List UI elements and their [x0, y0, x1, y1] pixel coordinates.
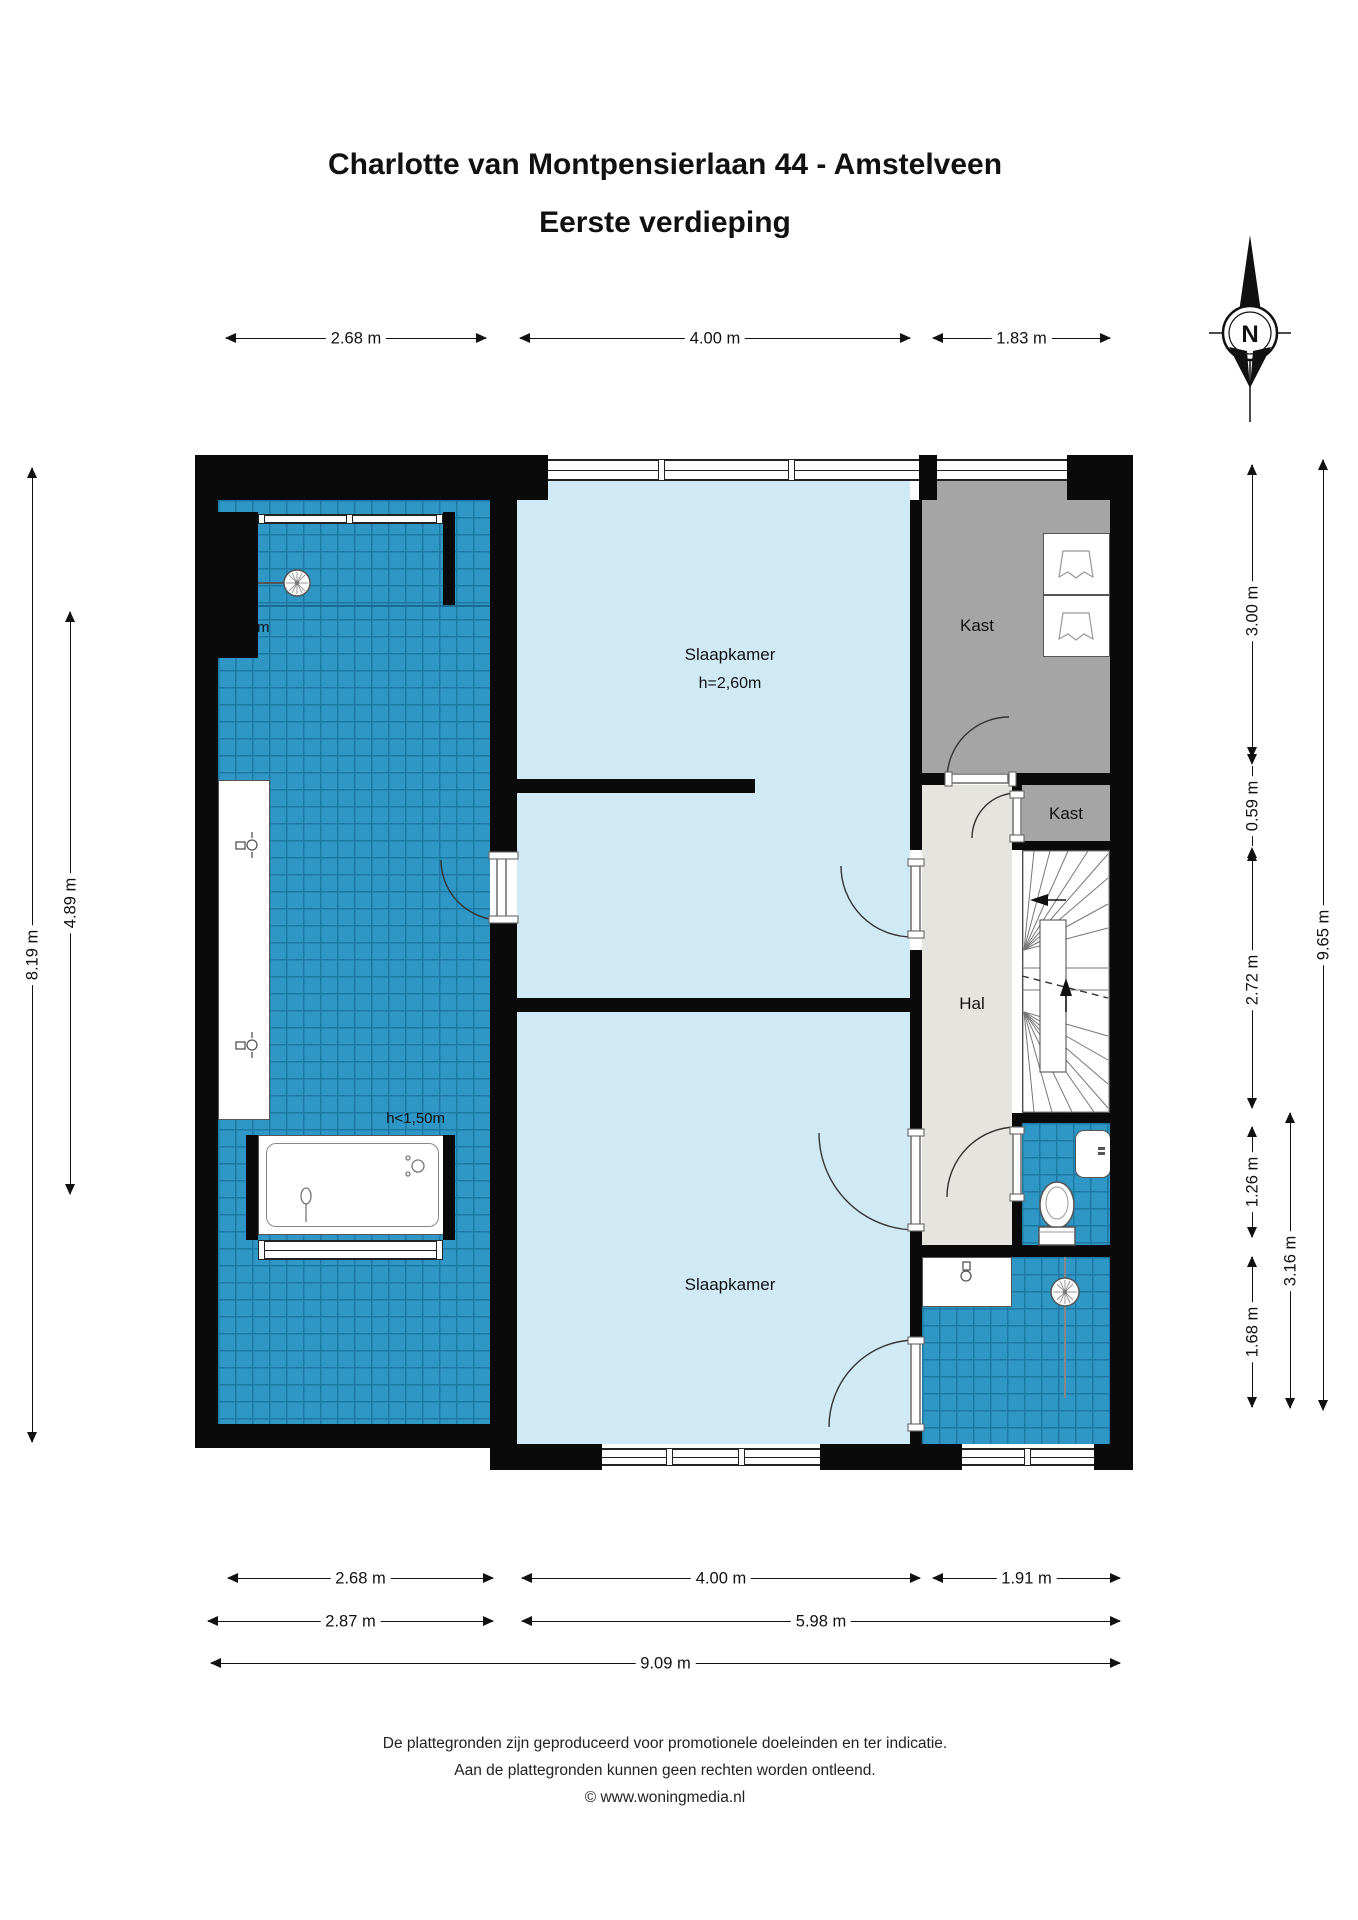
door-opening-hall-bedroom-bottom: [910, 1133, 922, 1230]
arrow-icon: [227, 1573, 238, 1583]
arrow-icon: [1318, 1400, 1328, 1411]
arrow-icon: [1285, 1112, 1295, 1123]
floorplan-page: Charlotte van Montpensierlaan 44 - Amste…: [0, 0, 1358, 1920]
toilet-handbasin: [1075, 1130, 1111, 1178]
closet-small-label: Kast: [1022, 804, 1110, 824]
dim-bottom1-left: 2.68 m: [228, 1578, 493, 1579]
door-opening-closet-large: [947, 773, 1015, 785]
wall-shower-stub-right: [443, 512, 455, 605]
wall-right-outer: [1110, 455, 1133, 1470]
dim-right-closet-small: 0.59 m: [1252, 766, 1253, 846]
wall-mid-left-lower: [490, 922, 517, 1470]
arrow-icon: [900, 333, 911, 343]
arrow-icon: [476, 333, 487, 343]
dim-bottom2-left: 2.87 m: [208, 1621, 493, 1622]
dim-right-closet: 3.00 m: [1252, 465, 1253, 757]
arrow-icon: [1247, 1397, 1257, 1408]
page-title-address: Charlotte van Montpensierlaan 44 - Amste…: [0, 148, 1330, 182]
bedroom-bottom-floor: [517, 1012, 910, 1444]
arrow-icon: [27, 467, 37, 478]
wall-bedroom-stub: [517, 779, 755, 793]
window-closet-large: [937, 459, 1067, 481]
arrow-icon: [483, 1573, 494, 1583]
arrow-icon: [1247, 1227, 1257, 1238]
dim-bottom1-right: 1.91 m: [933, 1578, 1120, 1579]
bathroom-washbasin: [922, 1257, 1012, 1307]
window-bedroom-top: [548, 459, 919, 481]
door-opening-hall-bedroom-top: [910, 863, 922, 937]
arrow-icon: [1110, 1616, 1121, 1626]
arrow-icon: [65, 1184, 75, 1195]
dim-right-wet-zone: 3.16 m: [1290, 1113, 1291, 1408]
wall-bathroom-top: [910, 1245, 1110, 1257]
wall-toilet-left-b: [1012, 1200, 1022, 1245]
window-bedroom-bottom: [602, 1448, 820, 1466]
footer-disclaimer-line2: Aan de plattegronden kunnen geen rechten…: [0, 1762, 1330, 1780]
bedroom-middle-patch: [755, 779, 910, 793]
closet-large-patch: [937, 481, 1067, 500]
arrow-icon: [519, 333, 530, 343]
hall-floor: [922, 785, 1012, 1245]
arrow-icon: [207, 1616, 218, 1626]
dim-bottom3-total: 9.09 m: [211, 1663, 1120, 1664]
bedroom-top-label: Slaapkamer: [540, 645, 920, 665]
wall-bath-stub-left: [246, 1135, 258, 1240]
wall-closet-bottom-left: [910, 773, 947, 785]
arrow-icon: [1110, 1658, 1121, 1668]
arrow-icon: [1247, 464, 1257, 475]
arrow-icon: [27, 1432, 37, 1443]
compass-north-icon: N: [1209, 235, 1291, 422]
arrow-icon: [65, 611, 75, 622]
staircase-floor: [1022, 850, 1110, 1113]
attic-height-note-bottom: h<1,50m: [340, 1110, 445, 1127]
wall-bottom-pier-left: [490, 1444, 602, 1470]
door-opening-closet-small: [1012, 793, 1022, 841]
bedroom-middle-floor: [517, 793, 910, 998]
dim-top-right: 1.83 m: [933, 338, 1110, 339]
wall-bath-stub-right: [443, 1135, 455, 1240]
dim-top-mid: 4.00 m: [520, 338, 910, 339]
dim-right-toilet: 1.26 m: [1252, 1127, 1253, 1237]
wall-toilet-top: [1012, 1113, 1110, 1123]
wall-shower-stub-left: [218, 512, 258, 658]
arrow-icon: [1247, 850, 1257, 861]
page-title-floor: Eerste verdieping: [0, 206, 1330, 240]
arrow-icon: [225, 333, 236, 343]
arrow-icon: [210, 1658, 221, 1668]
wall-closet-small-left: [1012, 785, 1022, 793]
dim-top-left: 2.68 m: [226, 338, 486, 339]
wall-mid-left-upper: [490, 455, 517, 855]
door-opening-bathroom: [910, 1340, 922, 1430]
svg-text:N: N: [1241, 321, 1258, 348]
double-washbasin-counter: [218, 780, 270, 1120]
arrow-icon: [483, 1616, 494, 1626]
window-bathroom: [962, 1448, 1094, 1466]
dim-right-bathroom: 1.68 m: [1252, 1257, 1253, 1407]
dim-bottom1-mid: 4.00 m: [522, 1578, 920, 1579]
arrow-icon: [910, 1573, 921, 1583]
wall-left-section-bottom: [195, 1424, 517, 1448]
dim-right-total: 9.65 m: [1323, 460, 1324, 1410]
wall-bottom-pier-mid: [820, 1444, 962, 1470]
closet-large-label: Kast: [960, 616, 1070, 636]
bedroom-bottom-label: Slaapkamer: [540, 1275, 920, 1295]
attic-slope-line: [218, 605, 490, 607]
hall-label: Hal: [927, 994, 1017, 1014]
door-opening-toilet: [1012, 1130, 1022, 1200]
wall-left-outer: [195, 455, 218, 1448]
wardrobe-top: [1043, 533, 1110, 595]
bedroom-top-height-label: h=2,60m: [540, 675, 920, 693]
wall-hall-left-d: [910, 1430, 922, 1444]
wall-stairs-top: [1012, 841, 1110, 850]
wall-top-pier: [919, 455, 937, 500]
arrow-icon: [932, 1573, 943, 1583]
arrow-icon: [521, 1616, 532, 1626]
dim-bottom2-right: 5.98 m: [522, 1621, 1120, 1622]
arrow-icon: [1318, 459, 1328, 470]
wall-bedroom-divider: [517, 998, 910, 1012]
door-opening-attic: [490, 855, 517, 922]
arrow-icon: [1247, 1098, 1257, 1109]
arrow-icon: [932, 333, 943, 343]
window-bath-ledge: [258, 1240, 443, 1260]
arrow-icon: [1100, 333, 1111, 343]
dim-left-inner: 4.89 m: [70, 612, 71, 1194]
wall-closet-bottom-right: [1015, 773, 1110, 785]
footer-disclaimer-line1: De plattegronden zijn geproduceerd voor …: [0, 1735, 1330, 1753]
arrow-icon: [1247, 1126, 1257, 1137]
bathtub: [258, 1135, 447, 1235]
bedroom-top-floor: [517, 500, 910, 779]
shower-glass-screen: [258, 514, 443, 524]
arrow-icon: [1247, 754, 1257, 765]
wall-hall-left-b: [910, 950, 922, 1130]
dim-right-stairs: 2.72 m: [1252, 851, 1253, 1108]
wall-toilet-left-a: [1012, 1123, 1022, 1130]
arrow-icon: [1285, 1398, 1295, 1409]
dim-left-total: 8.19 m: [32, 468, 33, 1442]
footer-copyright: © www.woningmedia.nl: [0, 1789, 1330, 1807]
arrow-icon: [1110, 1573, 1121, 1583]
arrow-icon: [1247, 1256, 1257, 1267]
arrow-icon: [521, 1573, 532, 1583]
bedroom-top-floor-patch: [548, 481, 910, 500]
